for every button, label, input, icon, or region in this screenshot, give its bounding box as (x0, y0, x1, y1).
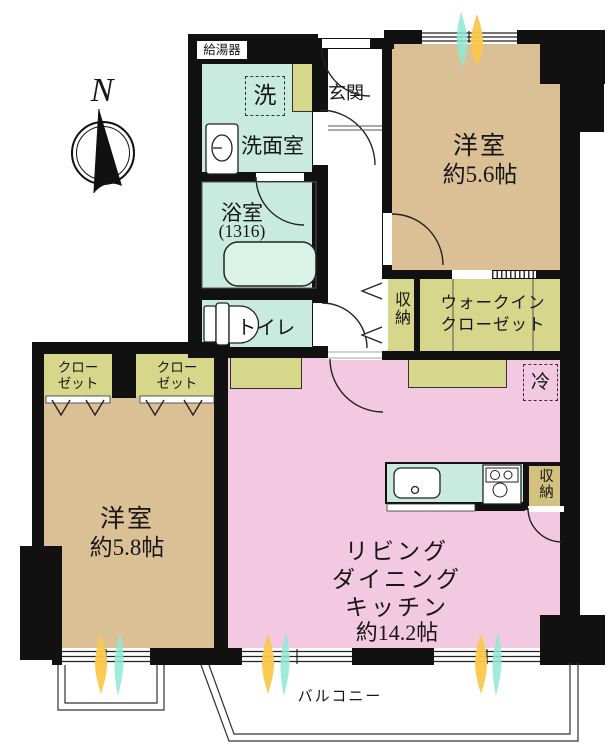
closet-folding-doors (46, 396, 214, 415)
wic-sliding-door (492, 271, 536, 278)
closet-left-label-line2: ゼット (46, 372, 110, 392)
hall-storage-label: 収納 (394, 292, 412, 328)
entrance-step-lines (328, 126, 382, 130)
window-ldk-bottom-right (434, 648, 540, 665)
toilet-door-arc (322, 303, 367, 348)
entrance-label: 玄関 (324, 79, 368, 105)
toilet-label: トイレ (232, 311, 300, 340)
washing-machine-box: 洗 (245, 76, 285, 116)
compass-north-label: N (80, 74, 124, 108)
refrigerator-box: 冷 (523, 364, 558, 401)
closet-right-label-line2: ゼット (140, 372, 214, 392)
water-heater-label: 給湯器 (196, 40, 248, 60)
kitchen-counter-front (387, 504, 475, 511)
bathtub-icon (224, 242, 316, 286)
window-bedroom1-top (422, 30, 517, 44)
bedroom2-size-label: 約5.8帖 (57, 528, 197, 562)
kitchen-sink-icon (394, 468, 440, 498)
folding-door-chevrons (362, 283, 382, 343)
floor-plan: N 給湯器 洗 洗面室 浴室 (1316) トイレ 玄関 洋室 約5.6帖 収納… (0, 0, 615, 750)
bathroom-size-label: (1316) (204, 221, 280, 242)
balcony-label: バルコニー (280, 685, 400, 706)
window-ldk-bottom-left (242, 648, 352, 665)
bedroom1-door-arc (392, 214, 443, 265)
washroom-door-arc (320, 110, 375, 165)
walkin-closet-label-line2: クローゼット (424, 311, 562, 335)
walkin-closet-label-line1: ウォークイン (424, 289, 562, 313)
bedroom1-size-label: 約5.6帖 (420, 155, 540, 189)
ldk-size-label: 約14.2帖 (297, 615, 497, 647)
ldk-door-arc (330, 359, 383, 412)
compass-icon (72, 109, 134, 193)
kitchen-storage-label: 収納 (538, 469, 555, 501)
stove-icon (483, 465, 521, 504)
washroom-label: 洗面室 (230, 130, 315, 160)
kitchen-storage-door-arc (528, 508, 562, 542)
